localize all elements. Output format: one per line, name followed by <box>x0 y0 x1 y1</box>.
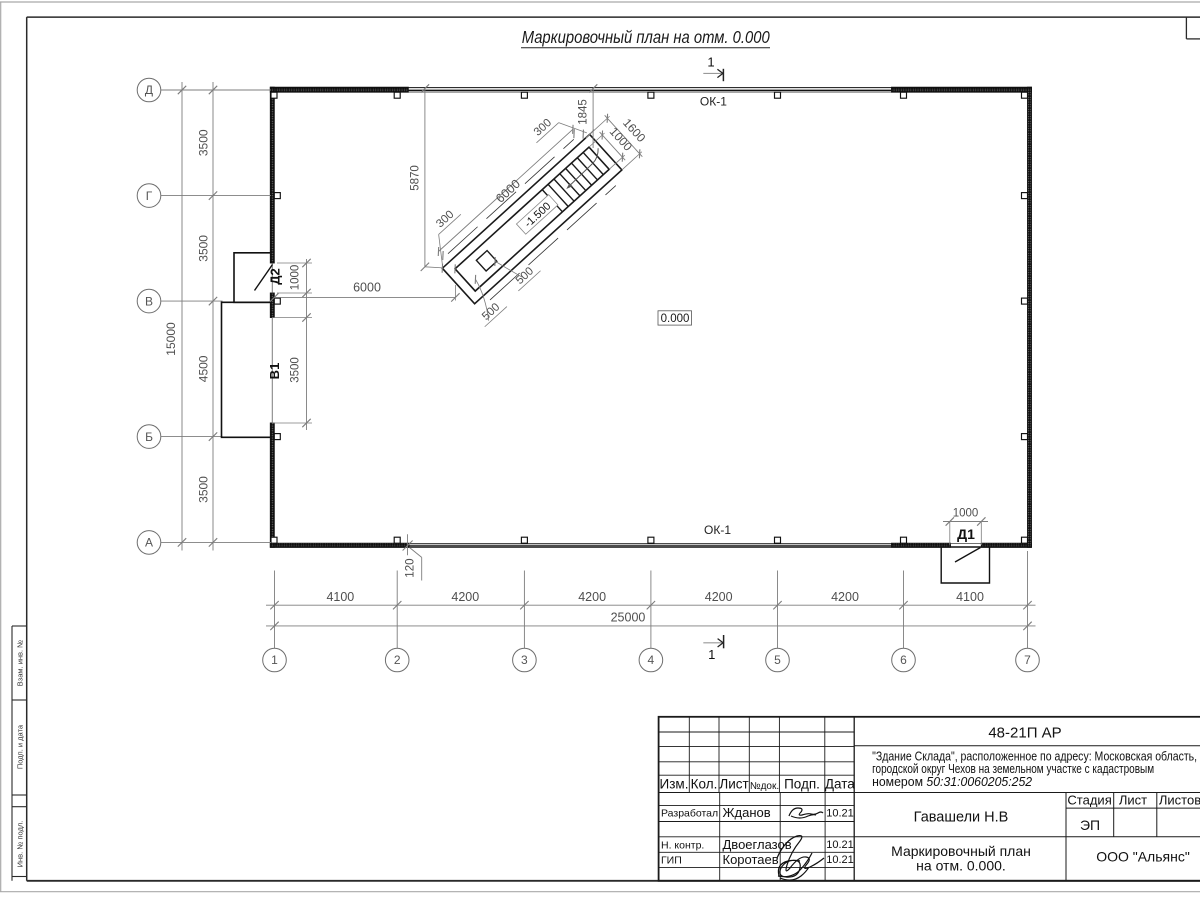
svg-text:3500: 3500 <box>197 235 211 262</box>
svg-text:Гавашели Н.В: Гавашели Н.В <box>914 810 1009 826</box>
svg-text:номером 50:31:0060205:252: номером 50:31:0060205:252 <box>872 775 1032 789</box>
svg-text:1: 1 <box>708 647 715 662</box>
svg-text:Взам. инв. №: Взам. инв. № <box>16 640 25 686</box>
svg-text:6000: 6000 <box>353 281 381 295</box>
svg-text:Н. контр.: Н. контр. <box>661 839 704 851</box>
svg-text:Подп.: Подп. <box>784 777 820 792</box>
svg-text:3500: 3500 <box>290 357 302 383</box>
svg-text:1000: 1000 <box>953 508 979 520</box>
svg-text:ЭП: ЭП <box>1080 817 1100 833</box>
svg-text:10.21: 10.21 <box>826 854 854 866</box>
svg-text:0.000: 0.000 <box>661 313 690 325</box>
svg-text:4200: 4200 <box>705 590 733 604</box>
svg-text:ООО "Альянс": ООО "Альянс" <box>1096 849 1190 865</box>
svg-text:Жданов: Жданов <box>723 805 771 820</box>
svg-text:Коротаев: Коротаев <box>723 852 779 867</box>
svg-text:10.21: 10.21 <box>826 808 854 820</box>
svg-text:4100: 4100 <box>326 590 354 604</box>
svg-text:4200: 4200 <box>578 590 606 604</box>
svg-text:3500: 3500 <box>197 476 211 503</box>
svg-text:4500: 4500 <box>197 355 211 382</box>
svg-text:Г: Г <box>146 189 153 203</box>
svg-text:48-21П АР: 48-21П АР <box>988 725 1061 742</box>
svg-text:4: 4 <box>648 653 655 667</box>
svg-text:Дата: Дата <box>825 777 855 792</box>
svg-text:1: 1 <box>271 653 278 667</box>
svg-text:Стадия: Стадия <box>1067 793 1111 808</box>
svg-text:4200: 4200 <box>831 590 859 604</box>
svg-text:А: А <box>145 536 153 550</box>
svg-text:7: 7 <box>1024 653 1031 667</box>
svg-text:Маркировочный план на отм. 0.0: Маркировочный план на отм. 0.000 <box>522 27 770 47</box>
svg-text:2: 2 <box>394 653 401 667</box>
svg-text:№док.: №док. <box>750 781 779 792</box>
svg-text:ГИП: ГИП <box>661 854 682 866</box>
svg-text:1000: 1000 <box>290 265 302 291</box>
svg-text:Лист: Лист <box>719 777 748 792</box>
svg-text:10.21: 10.21 <box>826 839 854 851</box>
svg-text:В: В <box>145 294 153 308</box>
svg-text:3: 3 <box>521 653 528 667</box>
svg-text:120: 120 <box>404 559 416 578</box>
svg-text:1845: 1845 <box>578 99 590 125</box>
svg-text:Листов: Листов <box>1159 793 1200 808</box>
svg-text:на отм. 0.000.: на отм. 0.000. <box>916 858 1006 874</box>
svg-text:6: 6 <box>900 653 907 667</box>
svg-text:Разработал: Разработал <box>661 808 718 820</box>
svg-text:15000: 15000 <box>164 322 178 356</box>
svg-text:ОК-1: ОК-1 <box>704 523 731 537</box>
svg-text:4100: 4100 <box>956 590 984 604</box>
svg-text:Б: Б <box>145 430 153 444</box>
svg-text:ОК-1: ОК-1 <box>700 95 727 109</box>
svg-text:Д: Д <box>145 83 153 97</box>
svg-text:В1: В1 <box>267 363 282 380</box>
svg-text:Д1: Д1 <box>957 526 975 542</box>
svg-text:Лист: Лист <box>1119 793 1147 808</box>
svg-text:3500: 3500 <box>197 129 211 156</box>
svg-text:5870: 5870 <box>410 165 422 191</box>
svg-text:5: 5 <box>774 653 781 667</box>
svg-text:4200: 4200 <box>451 590 479 604</box>
svg-text:Подп. и дата: Подп. и дата <box>16 724 25 769</box>
svg-text:Инв. № подл.: Инв. № подл. <box>16 821 25 868</box>
svg-text:1: 1 <box>707 54 714 69</box>
svg-text:Д2: Д2 <box>268 268 283 285</box>
svg-text:Кол.: Кол. <box>691 777 718 792</box>
svg-text:25000: 25000 <box>611 611 646 625</box>
svg-text:Изм.: Изм. <box>660 777 689 792</box>
